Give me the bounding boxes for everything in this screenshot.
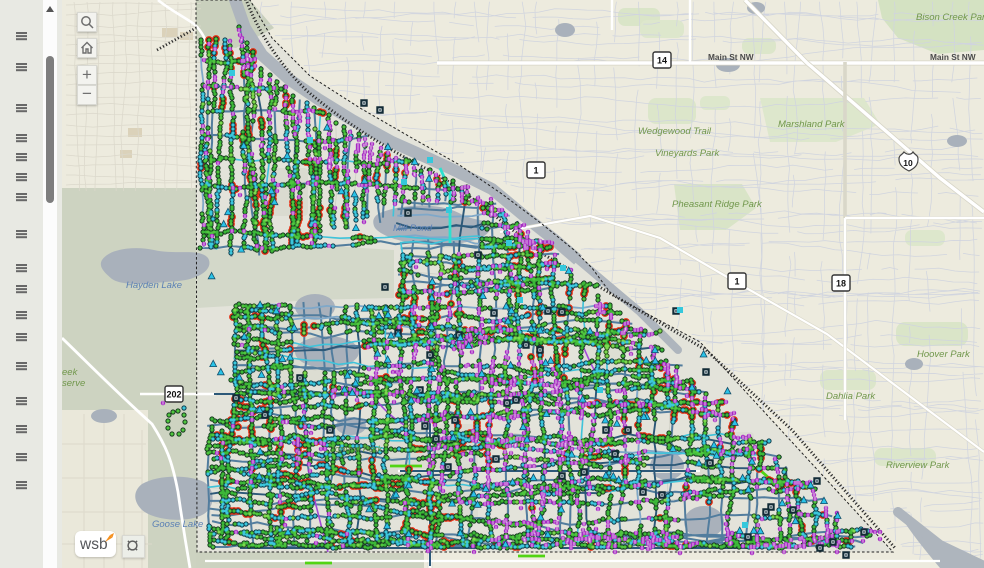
svg-text:Dahlia Park: Dahlia Park xyxy=(826,391,876,402)
svg-text:Mill Pond: Mill Pond xyxy=(393,223,433,234)
svg-text:202: 202 xyxy=(166,390,181,400)
svg-text:Bison Creek Park: Bison Creek Park xyxy=(916,12,984,23)
svg-text:10: 10 xyxy=(903,158,913,168)
svg-text:14: 14 xyxy=(657,56,667,66)
svg-text:serve: serve xyxy=(62,378,85,389)
svg-text:Jonquil Park: Jonquil Park xyxy=(329,444,384,455)
svg-text:Goose Lake: Goose Lake xyxy=(152,519,203,530)
svg-text:Vineyards Park: Vineyards Park xyxy=(655,148,720,159)
svg-text:1: 1 xyxy=(734,277,739,287)
svg-text:Hoover Park: Hoover Park xyxy=(917,349,971,360)
svg-text:Main St NW: Main St NW xyxy=(930,52,976,62)
svg-text:eek: eek xyxy=(62,367,79,378)
svg-text:Pheasant Ridge Park: Pheasant Ridge Park xyxy=(672,199,763,210)
svg-text:Main St NW: Main St NW xyxy=(708,52,754,62)
svg-text:18: 18 xyxy=(836,279,846,289)
svg-text:Wedgewood Trail: Wedgewood Trail xyxy=(638,126,712,137)
svg-text:Hayden Lake: Hayden Lake xyxy=(126,280,182,291)
svg-text:1: 1 xyxy=(533,166,538,176)
svg-text:Riverview Park: Riverview Park xyxy=(886,460,951,471)
svg-text:Marshland Park: Marshland Park xyxy=(778,119,846,130)
